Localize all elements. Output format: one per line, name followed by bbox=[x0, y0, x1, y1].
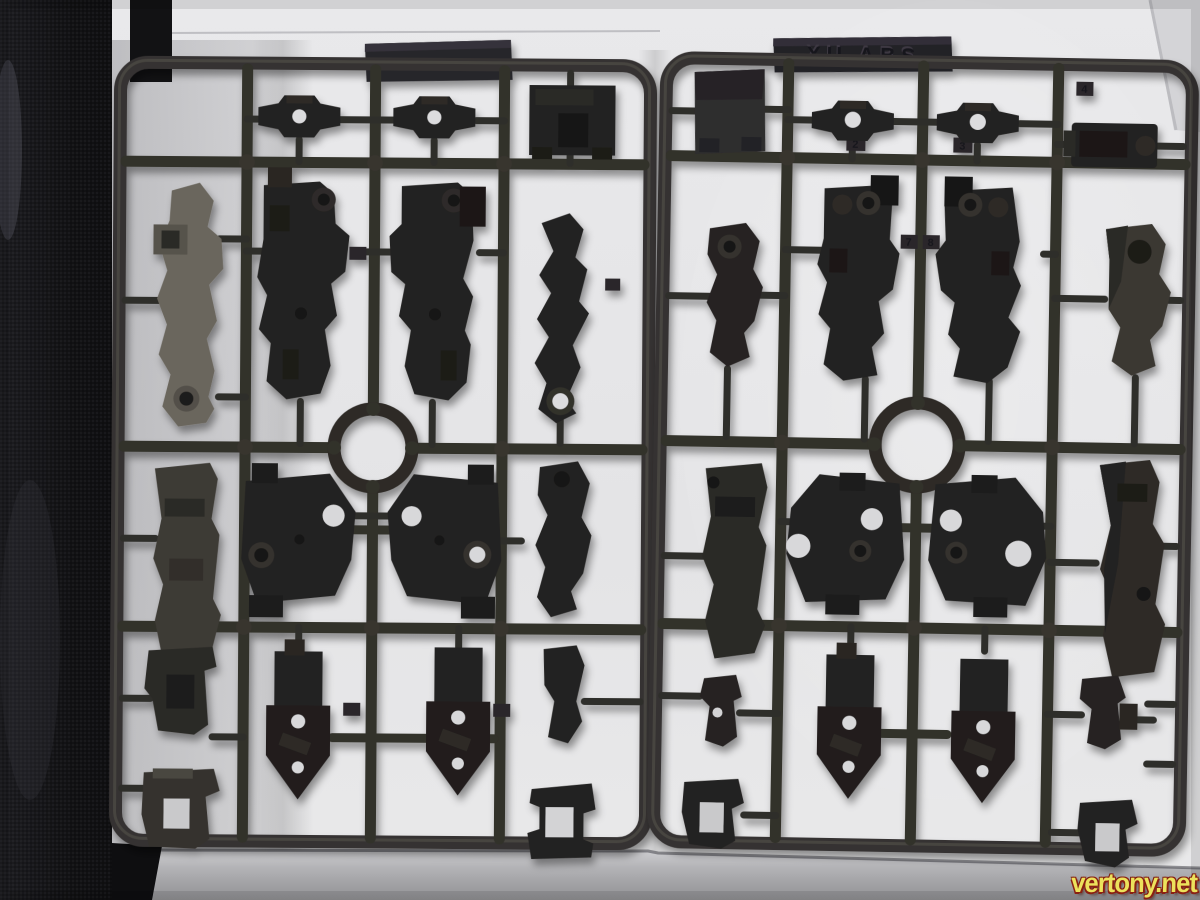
photo-of-model-kit-sprues: XU ABS XU ABS bbox=[0, 0, 1200, 900]
part-cylinder-box bbox=[1063, 122, 1158, 168]
part-box-housing bbox=[529, 85, 616, 160]
part-long-slab-right bbox=[1096, 459, 1168, 678]
part-flat-panel bbox=[693, 68, 766, 155]
part-tall-plate-right bbox=[700, 462, 767, 659]
part-tag-4: 4 bbox=[1081, 84, 1088, 96]
part-tag-7: 7 bbox=[906, 237, 912, 249]
scene: XU ABS XU ABS bbox=[0, 0, 1200, 900]
part-tag-8: 8 bbox=[928, 237, 934, 249]
watermark: vertony.net bbox=[1071, 868, 1198, 899]
part-side-plate bbox=[153, 462, 222, 662]
